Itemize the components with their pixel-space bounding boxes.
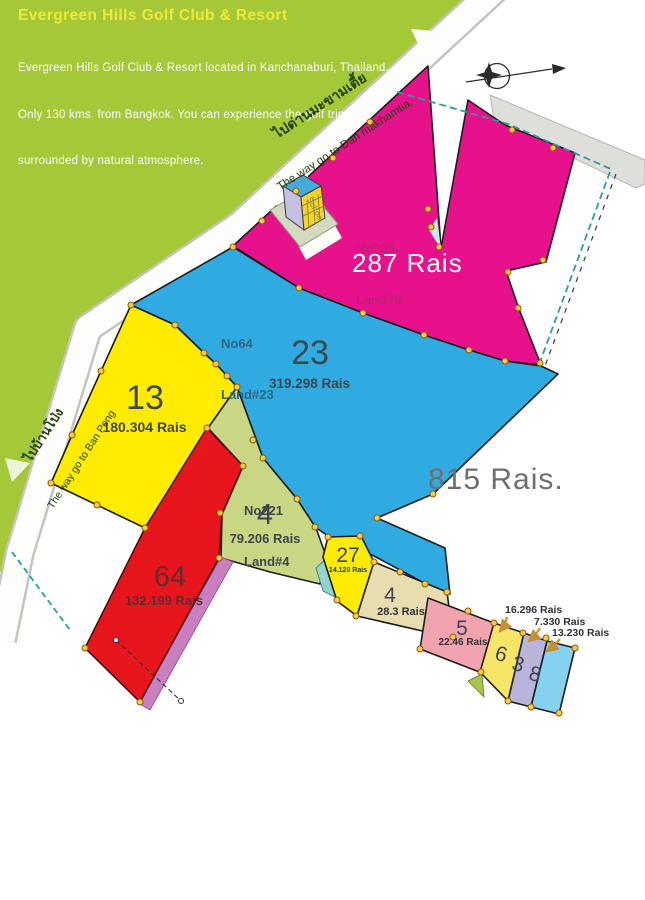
parcel-4a-land: Land#4 bbox=[244, 553, 290, 570]
parcel-64-area: 132.199 Rais bbox=[108, 594, 220, 608]
compass-icon bbox=[466, 62, 566, 89]
parcel-4b-number: 4 bbox=[372, 585, 408, 607]
parcel-4a-area: 79.206 Rais bbox=[222, 532, 308, 546]
parcel-4a-number: 4 bbox=[245, 500, 285, 530]
parcel-13-number: 13 bbox=[105, 381, 185, 417]
parcel-6-area: 16.296 Rais bbox=[505, 605, 562, 616]
map-poster: Evergreen Hills Golf Club & Resort Everg… bbox=[0, 0, 645, 900]
parcel-64-number: 64 bbox=[140, 562, 200, 592]
parcel-27-area: 14.120 Rais bbox=[324, 567, 372, 574]
parcel-4b-area: 28.3 Rais bbox=[366, 607, 436, 619]
parcel-23-ids: No64 Land#23 bbox=[221, 301, 274, 420]
parcel-8-area: 13.230 Rais bbox=[552, 628, 609, 639]
parcel-27-number: 27 bbox=[330, 545, 366, 567]
parcel-23-no: No64 bbox=[221, 335, 274, 352]
parcel-23-number: 23 bbox=[270, 336, 350, 372]
parcel-225-land: Land#8 bbox=[356, 291, 402, 308]
parcel-225-area: 287 Rais bbox=[352, 250, 463, 277]
poster-title: Evergreen Hills Golf Club & Resort bbox=[18, 8, 287, 24]
parcel-13-area: 180.304 Rais bbox=[82, 420, 207, 435]
green-triangle bbox=[468, 674, 484, 697]
parcel-5-area: 22.46 Rais bbox=[430, 638, 496, 649]
total-area-label: 815 Rais. bbox=[428, 464, 564, 496]
parcel-23-area: 319.298 Rais bbox=[252, 377, 367, 391]
